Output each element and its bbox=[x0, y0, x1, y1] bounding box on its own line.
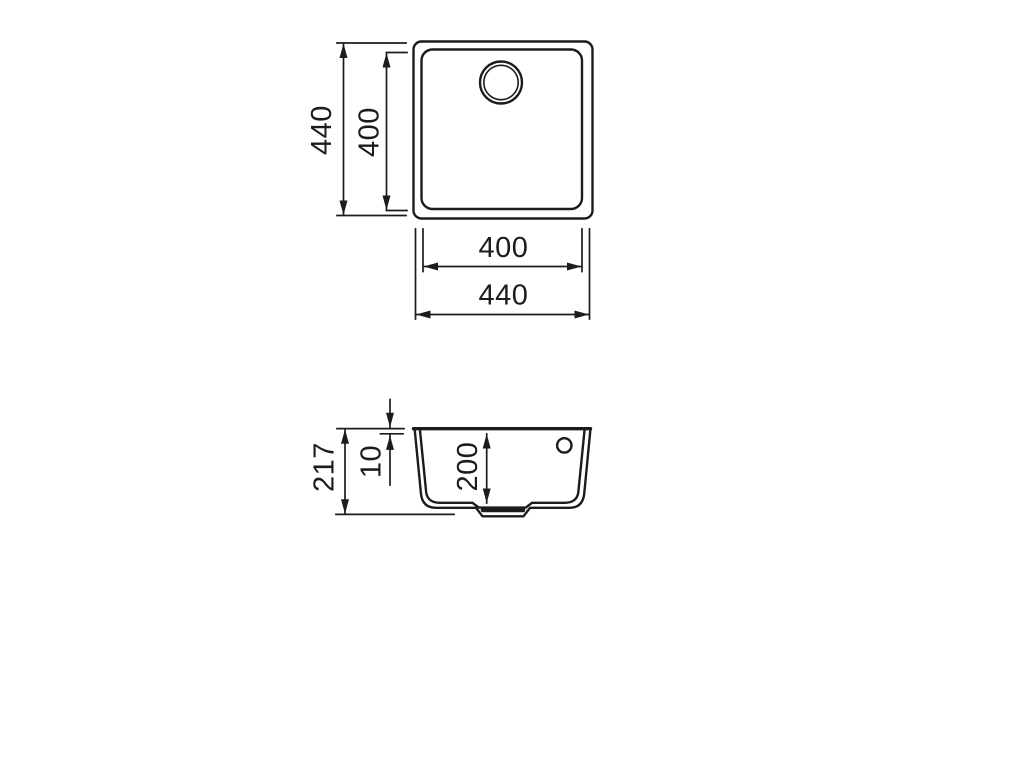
drain-inner-circle bbox=[484, 65, 518, 99]
dim-bowl-depth: 200 bbox=[452, 434, 487, 503]
dim-label-outer-height: 440 bbox=[306, 105, 338, 155]
dim-label-bowl-depth: 200 bbox=[452, 442, 484, 492]
dim-label-inner-height: 400 bbox=[354, 107, 386, 157]
dim-rim-height: 10 bbox=[356, 400, 404, 486]
drain-outer-circle bbox=[480, 62, 522, 104]
extension-lines bbox=[387, 53, 408, 211]
dim-inner-height: 400 bbox=[354, 53, 408, 211]
dim-label-inner-width: 400 bbox=[479, 232, 529, 264]
dim-label-outer-width: 440 bbox=[479, 280, 529, 312]
bowl-inner-outline bbox=[422, 50, 583, 210]
bowl-outer-outline bbox=[414, 42, 593, 219]
sink-dimension-diagram: 440 400 400 440 217 bbox=[0, 0, 1024, 768]
dim-label-rim-height: 10 bbox=[356, 445, 388, 478]
drawing-canvas: 440 400 400 440 217 bbox=[0, 0, 1024, 768]
side-view: 217 10 200 bbox=[309, 400, 591, 517]
top-view: 440 400 400 440 bbox=[306, 42, 593, 320]
dim-inner-width: 400 bbox=[423, 229, 582, 272]
dim-label-total-height: 217 bbox=[309, 442, 341, 492]
overflow-hole bbox=[557, 438, 571, 452]
